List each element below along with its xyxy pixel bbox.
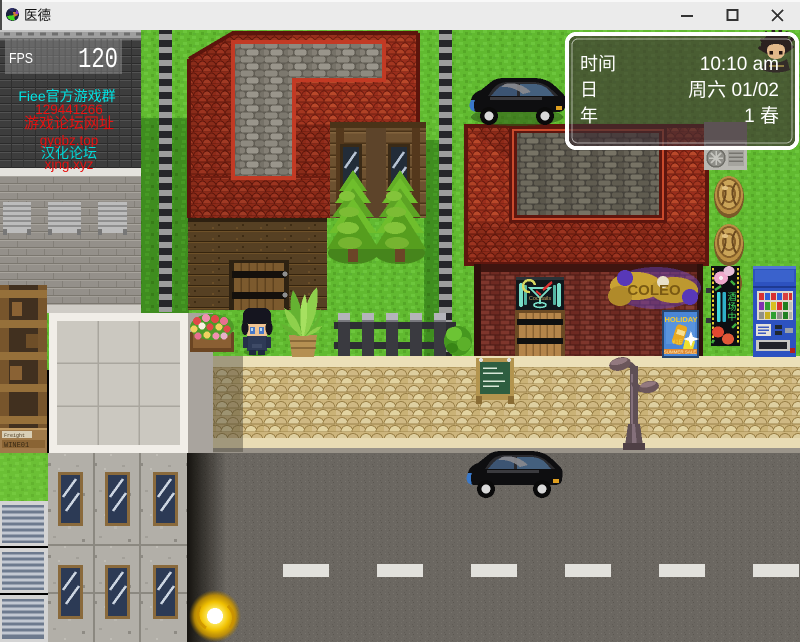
svg-text:Freight: Freight [4,433,25,439]
svg-text:10:10 am: 10:10 am [700,54,779,75]
svg-text:游戏论坛网址: 游戏论坛网址 [24,115,114,132]
svg-text:医德: 医德 [24,8,51,23]
svg-text:SUMMER SALE: SUMMER SALE [664,350,697,355]
svg-text:xjng.xyz: xjng.xyz [45,157,94,172]
svg-text:Cocktails: Cocktails [529,296,552,302]
svg-text:WINE01: WINE01 [4,442,29,450]
svg-text:1 春: 1 春 [744,105,779,127]
svg-text:场: 场 [727,302,736,312]
svg-text:酒: 酒 [727,292,736,302]
svg-text:时间: 时间 [580,54,616,74]
svg-text:年: 年 [580,106,598,126]
svg-text:日: 日 [580,80,598,100]
svg-text:周六 01/02: 周六 01/02 [688,79,779,101]
svg-text:¥1E: ¥1E [672,340,683,346]
svg-text:FPS: FPS [9,50,33,67]
svg-text:中: 中 [727,311,736,322]
svg-text:HOLIDAY: HOLIDAY [664,315,697,324]
svg-text:120: 120 [78,43,118,76]
svg-text:COLEO: COLEO [627,282,681,299]
